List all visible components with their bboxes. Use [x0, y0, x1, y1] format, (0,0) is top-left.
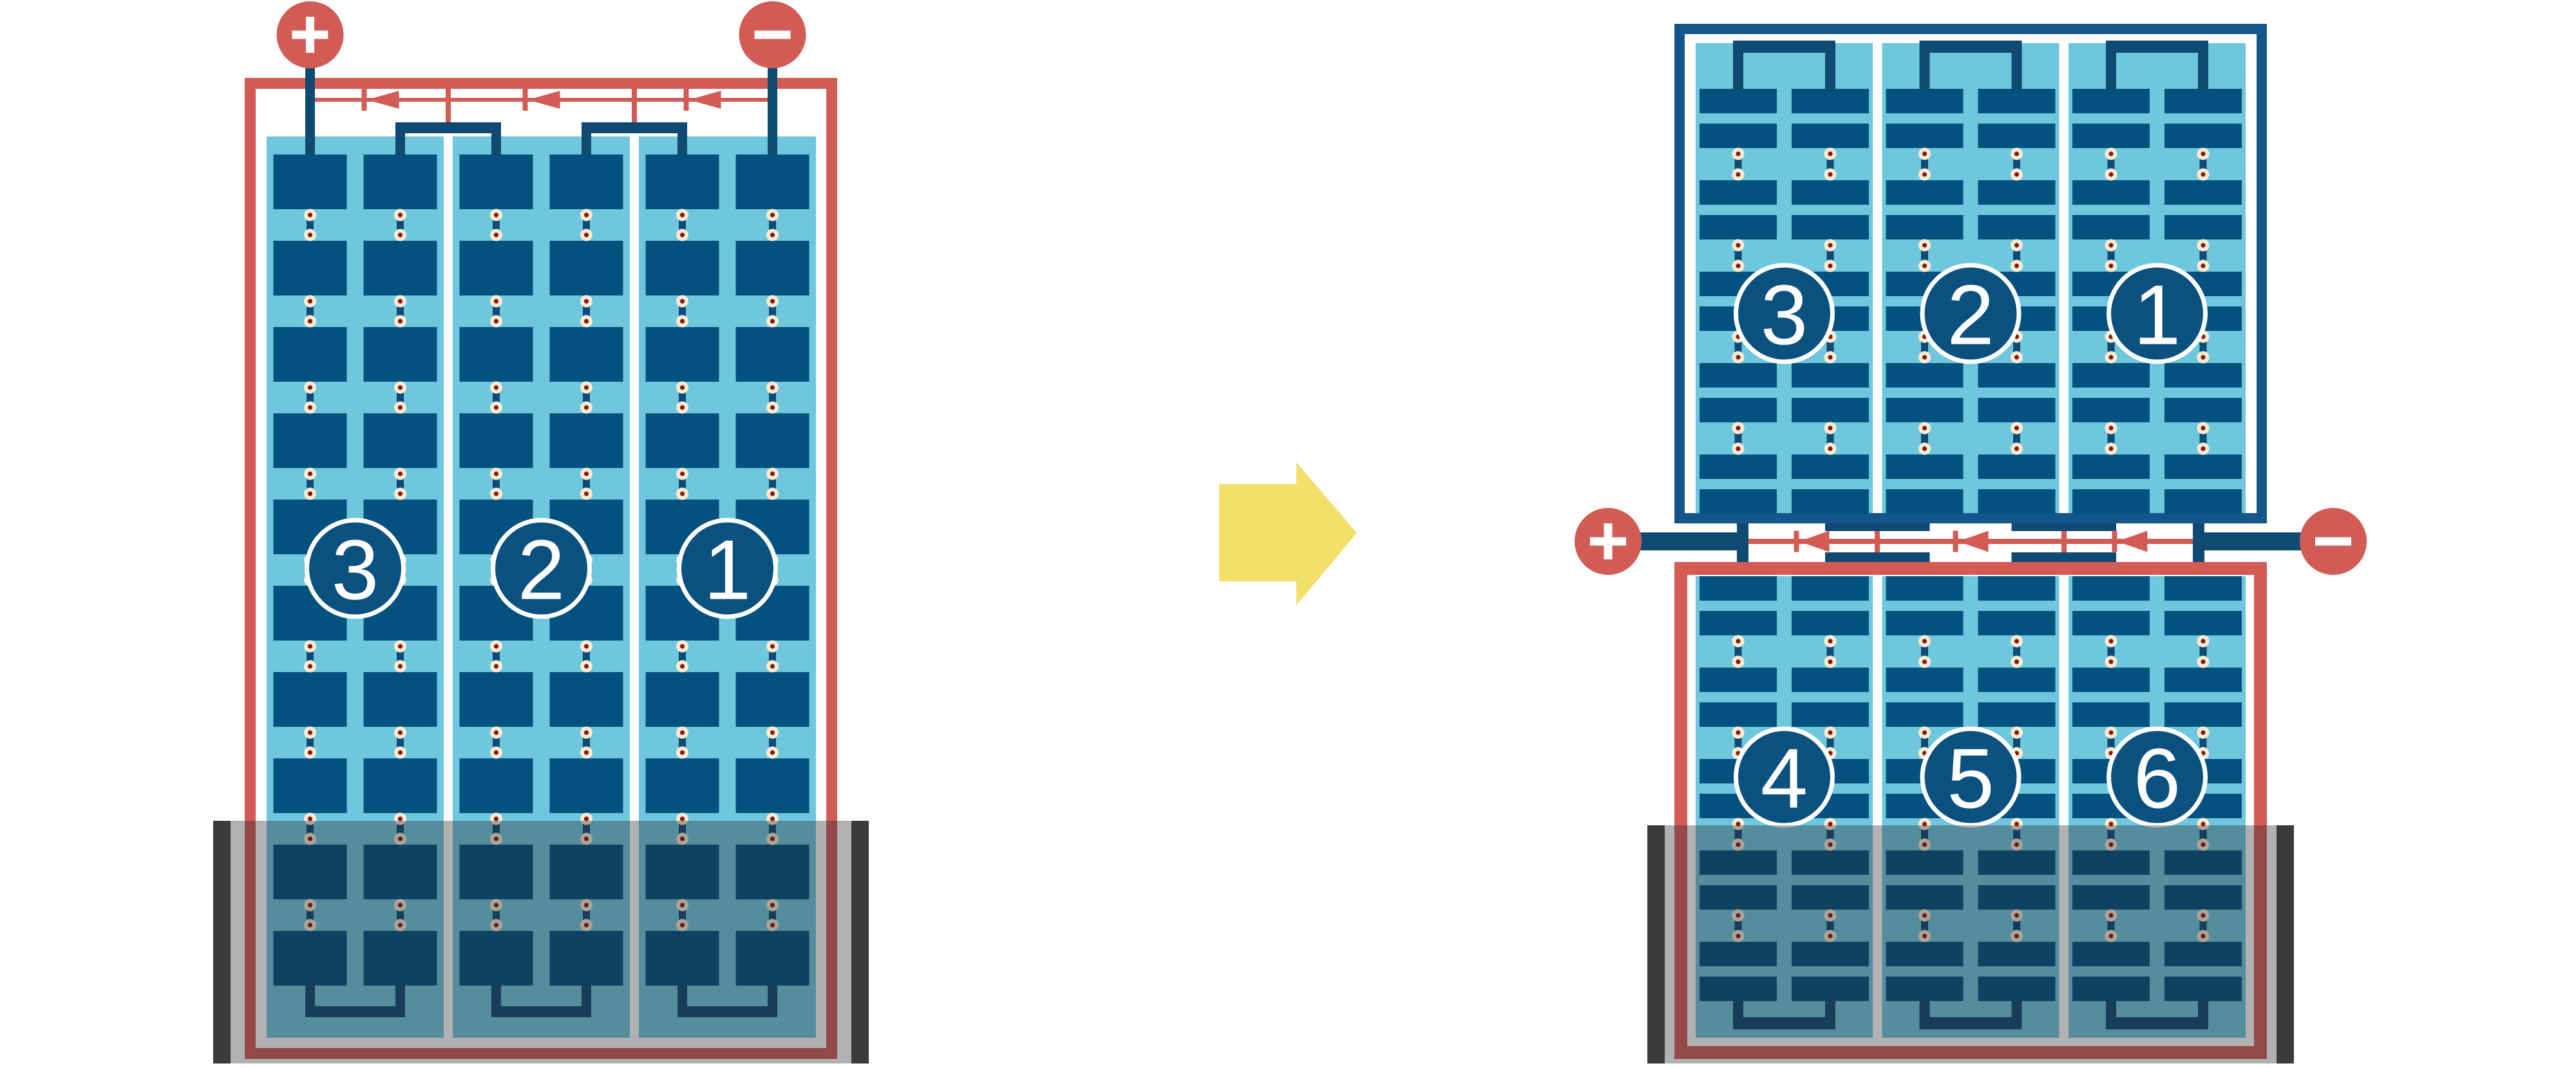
half-cut-cell	[1792, 702, 1869, 727]
solder-dot-core	[584, 816, 589, 821]
half-cut-cell	[1700, 398, 1777, 422]
half-cut-cell	[2072, 576, 2150, 601]
half-cut-cell	[2072, 89, 2150, 113]
solder-dot-core	[1736, 263, 1740, 268]
bypass-diode-icon	[1799, 531, 1830, 552]
half-cut-cell	[2072, 215, 2150, 239]
solder-dot-core	[1736, 151, 1740, 156]
solder-dot-core	[584, 644, 589, 648]
half-cut-cell	[1700, 702, 1777, 727]
connector-leg	[2198, 52, 2208, 90]
shade-overlay	[1647, 825, 2294, 1063]
plus-glyph	[306, 17, 314, 53]
solder-dot-core	[398, 319, 402, 323]
solder-dot-core	[308, 212, 312, 217]
solder-dot-core	[308, 750, 312, 754]
solder-dot-core	[2108, 659, 2113, 664]
half-cut-cell	[2072, 398, 2150, 422]
solar-cell	[736, 241, 810, 295]
connector-leg	[395, 133, 405, 156]
solder-dot-core	[398, 385, 402, 389]
half-cut-cell	[1886, 702, 1964, 727]
transform-arrow	[1219, 462, 1357, 605]
solder-dot-core	[1828, 426, 1832, 430]
solder-dot-core	[308, 816, 312, 821]
connector-leg	[491, 133, 501, 156]
solar-cell	[736, 327, 810, 382]
solar-cell	[460, 327, 533, 382]
minus-glyph	[2315, 538, 2351, 546]
solar-cell	[646, 672, 719, 727]
solar-cell	[736, 672, 810, 727]
solder-dot-core	[2108, 355, 2113, 359]
half-cut-cell	[1978, 702, 2056, 727]
shade-overlay	[213, 821, 869, 1063]
solder-dot-core	[584, 232, 589, 237]
solder-dot-core	[494, 385, 498, 389]
solar-cell	[550, 327, 623, 382]
half-cut-cell	[1978, 668, 2056, 692]
solder-dot-core	[680, 232, 685, 237]
diode-tap-stub	[446, 89, 451, 124]
half-cut-cell	[2072, 668, 2150, 692]
half-cut-cell	[1886, 363, 1964, 388]
half-cut-cell	[2164, 611, 2242, 635]
half-cut-cell	[2072, 489, 2150, 514]
half-cut-cell	[1886, 576, 1964, 601]
solder-dot-core	[770, 232, 775, 237]
solder-dot-core	[2201, 151, 2205, 156]
solder-dot-core	[308, 471, 312, 476]
solder-dot-core	[584, 385, 589, 389]
solder-dot-core	[494, 664, 498, 668]
string-number-label: 1	[704, 523, 751, 617]
half-cut-cell	[1886, 611, 1964, 635]
half-cut-cell	[2164, 398, 2242, 422]
solder-dot-core	[494, 299, 498, 303]
solder-dot-core	[680, 664, 685, 668]
solder-dot-core	[494, 491, 498, 496]
solder-dot-core	[308, 491, 312, 496]
solder-dot-core	[308, 319, 312, 323]
solar-cell	[460, 241, 533, 295]
solar-cell	[550, 413, 623, 468]
junction-tab-upper	[1825, 523, 1930, 531]
half-cut-cell	[1792, 89, 1869, 113]
solder-dot-core	[1828, 659, 1832, 664]
solder-dot-core	[2014, 659, 2019, 664]
diode-tap-stub	[1875, 531, 1880, 552]
half-cut-cell	[1792, 215, 1869, 239]
solder-dot-core	[398, 816, 402, 821]
solder-dot-core	[2014, 151, 2019, 156]
solder-dot-core	[584, 319, 589, 323]
half-cut-cell	[1886, 398, 1964, 422]
solder-dot-core	[2201, 243, 2205, 247]
solder-dot-core	[2108, 446, 2113, 451]
diode-cathode-bar	[1953, 531, 1958, 552]
half-cut-cell	[1700, 215, 1777, 239]
solder-dot-core	[2201, 730, 2205, 735]
solder-dot-core	[1736, 659, 1740, 664]
solder-dot-core	[1922, 355, 1927, 359]
bypass-diode-icon	[1958, 531, 1989, 552]
solder-dot-core	[1828, 243, 1832, 247]
half-cut-cell	[1792, 363, 1869, 388]
solar-cell	[736, 413, 810, 468]
solder-dot-core	[680, 299, 685, 303]
solder-dot-core	[680, 319, 685, 323]
solar-cell	[550, 241, 623, 295]
bypass-diode-icon	[2117, 531, 2148, 552]
half-cut-cell	[1978, 363, 2056, 388]
diode-cathode-bar	[362, 89, 367, 111]
solder-dot-core	[2014, 172, 2019, 176]
arrow-right-icon	[1219, 462, 1357, 605]
solder-dot-core	[680, 816, 685, 821]
solder-dot-core	[770, 664, 775, 668]
solder-dot-core	[680, 385, 685, 389]
half-cut-cell	[2072, 454, 2150, 479]
solder-dot-core	[494, 319, 498, 323]
half-cut-cell	[1886, 454, 1964, 479]
string-top-connector	[1920, 41, 2022, 53]
solder-dot-core	[1828, 263, 1832, 268]
half-cut-cell	[2164, 454, 2242, 479]
solder-dot-core	[494, 212, 498, 217]
half-cut-cell	[1886, 124, 1964, 148]
solder-dot-core	[584, 405, 589, 409]
half-cut-cell	[1886, 180, 1964, 205]
solder-dot-core	[1828, 730, 1832, 735]
solar-cell	[736, 155, 810, 209]
solar-cell	[274, 413, 347, 468]
connector-leg	[582, 133, 591, 156]
half-cut-cell	[1700, 454, 1777, 479]
solder-dot-core	[2201, 355, 2205, 359]
solar-cell	[274, 327, 347, 382]
junction-tab-lower	[1825, 552, 1930, 562]
solder-dot-core	[494, 750, 498, 754]
solder-dot-core	[1922, 151, 1927, 156]
solder-dot-core	[680, 405, 685, 409]
string-top-connector	[395, 122, 501, 133]
string-number-label: 1	[2134, 268, 2181, 362]
solder-dot-core	[2108, 151, 2113, 156]
solar-cell	[364, 155, 437, 209]
half-cut-cell	[1978, 124, 2056, 148]
solder-dot-core	[1736, 172, 1740, 176]
solder-dot-core	[584, 730, 589, 735]
right-module: 342516	[1575, 29, 2367, 1063]
solder-dot-core	[2201, 639, 2205, 643]
diode-cathode-bar	[523, 89, 528, 111]
solder-dot-core	[1736, 730, 1740, 735]
shading-object-bar	[851, 821, 869, 1063]
half-cut-cell	[1792, 668, 1869, 692]
solder-dot-core	[584, 212, 589, 217]
half-cut-cell	[1978, 576, 2056, 601]
bypass-diode-icon	[528, 91, 560, 109]
half-cut-cell	[2072, 611, 2150, 635]
solder-dot-core	[1736, 639, 1740, 643]
solder-dot-core	[680, 212, 685, 217]
solder-dot-core	[1922, 730, 1927, 735]
shading-object-bar	[213, 821, 231, 1063]
solder-dot-core	[584, 750, 589, 754]
half-cut-cell	[1792, 454, 1869, 479]
solar-cell	[550, 672, 623, 727]
half-cut-cell	[1700, 124, 1777, 148]
string-number-label: 3	[1761, 268, 1808, 362]
connector-leg	[2106, 52, 2116, 90]
solder-dot-core	[308, 664, 312, 668]
solder-dot-core	[2201, 446, 2205, 451]
string-number-label: 2	[1947, 268, 1994, 362]
solar-cell	[646, 241, 719, 295]
half-cut-cell	[1886, 489, 1964, 514]
half-cut-cell	[1700, 363, 1777, 388]
solder-dot-core	[770, 319, 775, 323]
solar-cell	[550, 155, 623, 209]
half-cut-cell	[1792, 489, 1869, 514]
solder-dot-core	[398, 644, 402, 648]
solder-dot-core	[308, 385, 312, 389]
diode-tap-stub	[632, 89, 637, 124]
solder-dot-core	[680, 491, 685, 496]
solar-cell	[274, 155, 347, 209]
solder-dot-core	[1828, 151, 1832, 156]
solder-dot-core	[770, 750, 775, 754]
diagram-canvas: 321342516	[0, 0, 2576, 1068]
connector-leg	[1920, 52, 1930, 90]
half-cut-cell	[2164, 702, 2242, 727]
solder-dot-core	[680, 730, 685, 735]
solder-dot-core	[494, 816, 498, 821]
solder-dot-core	[2108, 172, 2113, 176]
plus-glyph	[1604, 523, 1613, 559]
connector-leg	[2012, 52, 2022, 90]
half-cut-cell	[2072, 363, 2150, 388]
pv-module-diagram: 321342516	[0, 0, 2576, 1068]
shading-object-bar	[1647, 825, 1665, 1063]
solder-dot-core	[398, 299, 402, 303]
solder-dot-core	[770, 816, 775, 821]
solder-dot-core	[2014, 263, 2019, 268]
solder-dot-core	[584, 664, 589, 668]
half-cut-cell	[1978, 180, 2056, 205]
bypass-diode-icon	[367, 91, 399, 109]
half-cut-cell	[1700, 576, 1777, 601]
connector-leg	[677, 133, 687, 156]
solder-dot-core	[308, 644, 312, 648]
diode-cathode-bar	[1794, 531, 1799, 552]
string-number-label: 6	[2134, 731, 2181, 826]
solder-dot-core	[2014, 426, 2019, 430]
half-cut-cell	[1978, 489, 2056, 514]
solder-dot-core	[770, 299, 775, 303]
half-cut-cell	[1792, 398, 1869, 422]
half-cut-cell	[2164, 180, 2242, 205]
half-cut-cell	[1792, 180, 1869, 205]
half-cut-cell	[2164, 124, 2242, 148]
solder-dot-core	[770, 471, 775, 476]
solar-cell	[364, 758, 437, 813]
solder-dot-core	[1828, 639, 1832, 643]
solar-cell	[646, 413, 719, 468]
solder-dot-core	[2014, 730, 2019, 735]
solder-dot-core	[584, 299, 589, 303]
solder-dot-core	[680, 750, 685, 754]
solder-dot-core	[2108, 639, 2113, 643]
half-cut-cell	[1886, 215, 1964, 239]
solder-dot-core	[770, 644, 775, 648]
solar-cell	[550, 758, 623, 813]
solder-dot-core	[2014, 639, 2019, 643]
half-cut-cell	[2164, 215, 2242, 239]
solar-cell	[274, 758, 347, 813]
solder-dot-core	[1922, 263, 1927, 268]
string-number-label: 2	[518, 523, 565, 617]
solder-dot-core	[494, 471, 498, 476]
solder-dot-core	[2201, 659, 2205, 664]
solar-cell	[460, 413, 533, 468]
half-cut-cell	[1978, 89, 2056, 113]
solar-cell	[364, 413, 437, 468]
solder-dot-core	[494, 644, 498, 648]
half-cut-cell	[2164, 89, 2242, 113]
solder-dot-core	[2201, 263, 2205, 268]
diode-tap-stub	[2061, 531, 2067, 552]
solder-dot-core	[1736, 446, 1740, 451]
solder-dot-core	[2108, 263, 2113, 268]
solar-cell	[646, 327, 719, 382]
solder-dot-core	[1922, 639, 1927, 643]
solder-dot-core	[1922, 659, 1927, 664]
solar-cell	[364, 672, 437, 727]
solder-dot-core	[680, 644, 685, 648]
solder-dot-core	[398, 730, 402, 735]
solder-dot-core	[2014, 243, 2019, 247]
half-cut-cell	[2164, 363, 2242, 388]
bypass-diode-icon	[689, 91, 721, 109]
solar-cell	[736, 758, 810, 813]
solar-cell	[460, 155, 533, 209]
solder-dot-core	[1736, 426, 1740, 430]
solder-dot-core	[398, 232, 402, 237]
solar-cell	[460, 672, 533, 727]
solar-cell	[364, 327, 437, 382]
left-module: 321	[213, 1, 869, 1063]
string-top-connector	[582, 122, 687, 133]
solder-dot-core	[584, 491, 589, 496]
shading-object-bar	[2277, 825, 2294, 1063]
solder-dot-core	[1922, 243, 1927, 247]
half-cut-cell	[1792, 611, 1869, 635]
solder-dot-core	[398, 750, 402, 754]
solar-cell	[274, 672, 347, 727]
solder-dot-core	[494, 730, 498, 735]
half-cut-cell	[2072, 124, 2150, 148]
solder-dot-core	[770, 212, 775, 217]
half-cut-cell	[1886, 89, 1964, 113]
half-cut-cell	[1700, 489, 1777, 514]
half-cut-cell	[2164, 576, 2242, 601]
diode-cathode-bar	[2112, 531, 2117, 552]
solder-dot-core	[2201, 426, 2205, 430]
string-top-connector	[1733, 41, 1835, 53]
solar-cell	[364, 241, 437, 295]
half-cut-cell	[2164, 489, 2242, 514]
half-cut-cell	[1978, 398, 2056, 422]
half-cut-cell	[2072, 702, 2150, 727]
connector-leg	[1825, 52, 1835, 90]
solder-dot-core	[308, 299, 312, 303]
solder-dot-core	[308, 730, 312, 735]
solder-dot-core	[398, 405, 402, 409]
solder-dot-core	[584, 471, 589, 476]
solder-dot-core	[494, 232, 498, 237]
solder-dot-core	[770, 405, 775, 409]
half-cut-cell	[1700, 611, 1777, 635]
half-cut-cell	[1700, 668, 1777, 692]
string-number-label: 5	[1947, 731, 1994, 826]
solar-cell	[460, 758, 533, 813]
diode-cathode-bar	[684, 89, 689, 111]
solder-dot-core	[1922, 446, 1927, 451]
string-number-label: 3	[332, 523, 379, 617]
half-cut-cell	[1700, 180, 1777, 205]
half-cut-cell	[1792, 576, 1869, 601]
solder-dot-core	[398, 664, 402, 668]
solar-cell	[274, 241, 347, 295]
half-cut-cell	[2164, 668, 2242, 692]
half-cut-cell	[1978, 454, 2056, 479]
solder-dot-core	[308, 232, 312, 237]
half-cut-cell	[1792, 124, 1869, 148]
solder-dot-core	[1736, 355, 1740, 359]
solder-dot-core	[770, 730, 775, 735]
solder-dot-core	[2014, 355, 2019, 359]
junction-tab-upper	[2012, 523, 2117, 531]
solder-dot-core	[1922, 426, 1927, 430]
half-cut-cell	[1978, 215, 2056, 239]
solder-dot-core	[2014, 446, 2019, 451]
solder-dot-core	[2201, 172, 2205, 176]
solder-dot-core	[2108, 426, 2113, 430]
solder-dot-core	[494, 405, 498, 409]
solder-dot-core	[308, 405, 312, 409]
minus-glyph	[755, 31, 791, 39]
string-top-connector	[2106, 41, 2208, 53]
solder-dot-core	[1828, 172, 1832, 176]
string-number-label: 4	[1761, 731, 1808, 826]
solder-dot-core	[1922, 172, 1927, 176]
solder-dot-core	[1828, 355, 1832, 359]
solder-dot-core	[2108, 730, 2113, 735]
solder-dot-core	[398, 491, 402, 496]
solder-dot-core	[398, 212, 402, 217]
solder-dot-core	[2108, 243, 2113, 247]
solder-dot-core	[770, 385, 775, 389]
solar-cell	[646, 758, 719, 813]
half-cut-cell	[1886, 668, 1964, 692]
junction-tab-lower	[2012, 552, 2117, 562]
solder-dot-core	[680, 471, 685, 476]
solder-dot-core	[1736, 243, 1740, 247]
half-cut-cell	[1978, 611, 2056, 635]
solder-dot-core	[398, 471, 402, 476]
